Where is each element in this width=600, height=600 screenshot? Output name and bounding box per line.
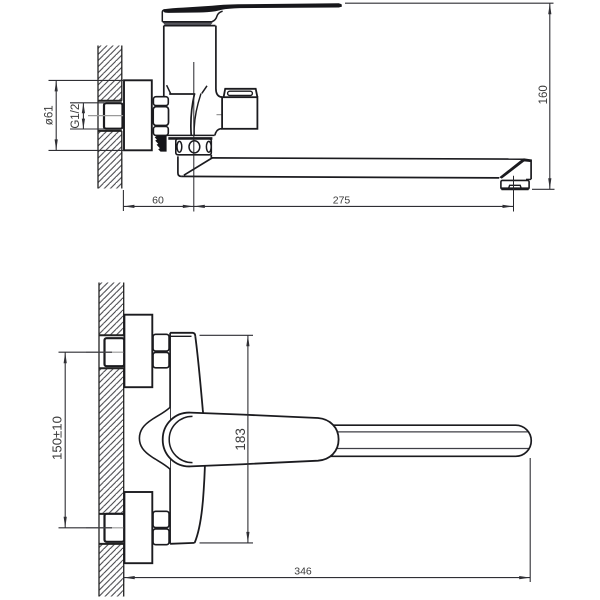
svg-text:160: 160 [538,85,550,104]
svg-text:150±10: 150±10 [50,416,65,460]
svg-text:346: 346 [294,565,312,577]
svg-text:60: 60 [152,195,164,207]
svg-text:183: 183 [233,428,248,450]
svg-text:ø61: ø61 [44,105,56,125]
svg-text:275: 275 [333,195,351,207]
svg-text:G1/2: G1/2 [70,104,82,129]
